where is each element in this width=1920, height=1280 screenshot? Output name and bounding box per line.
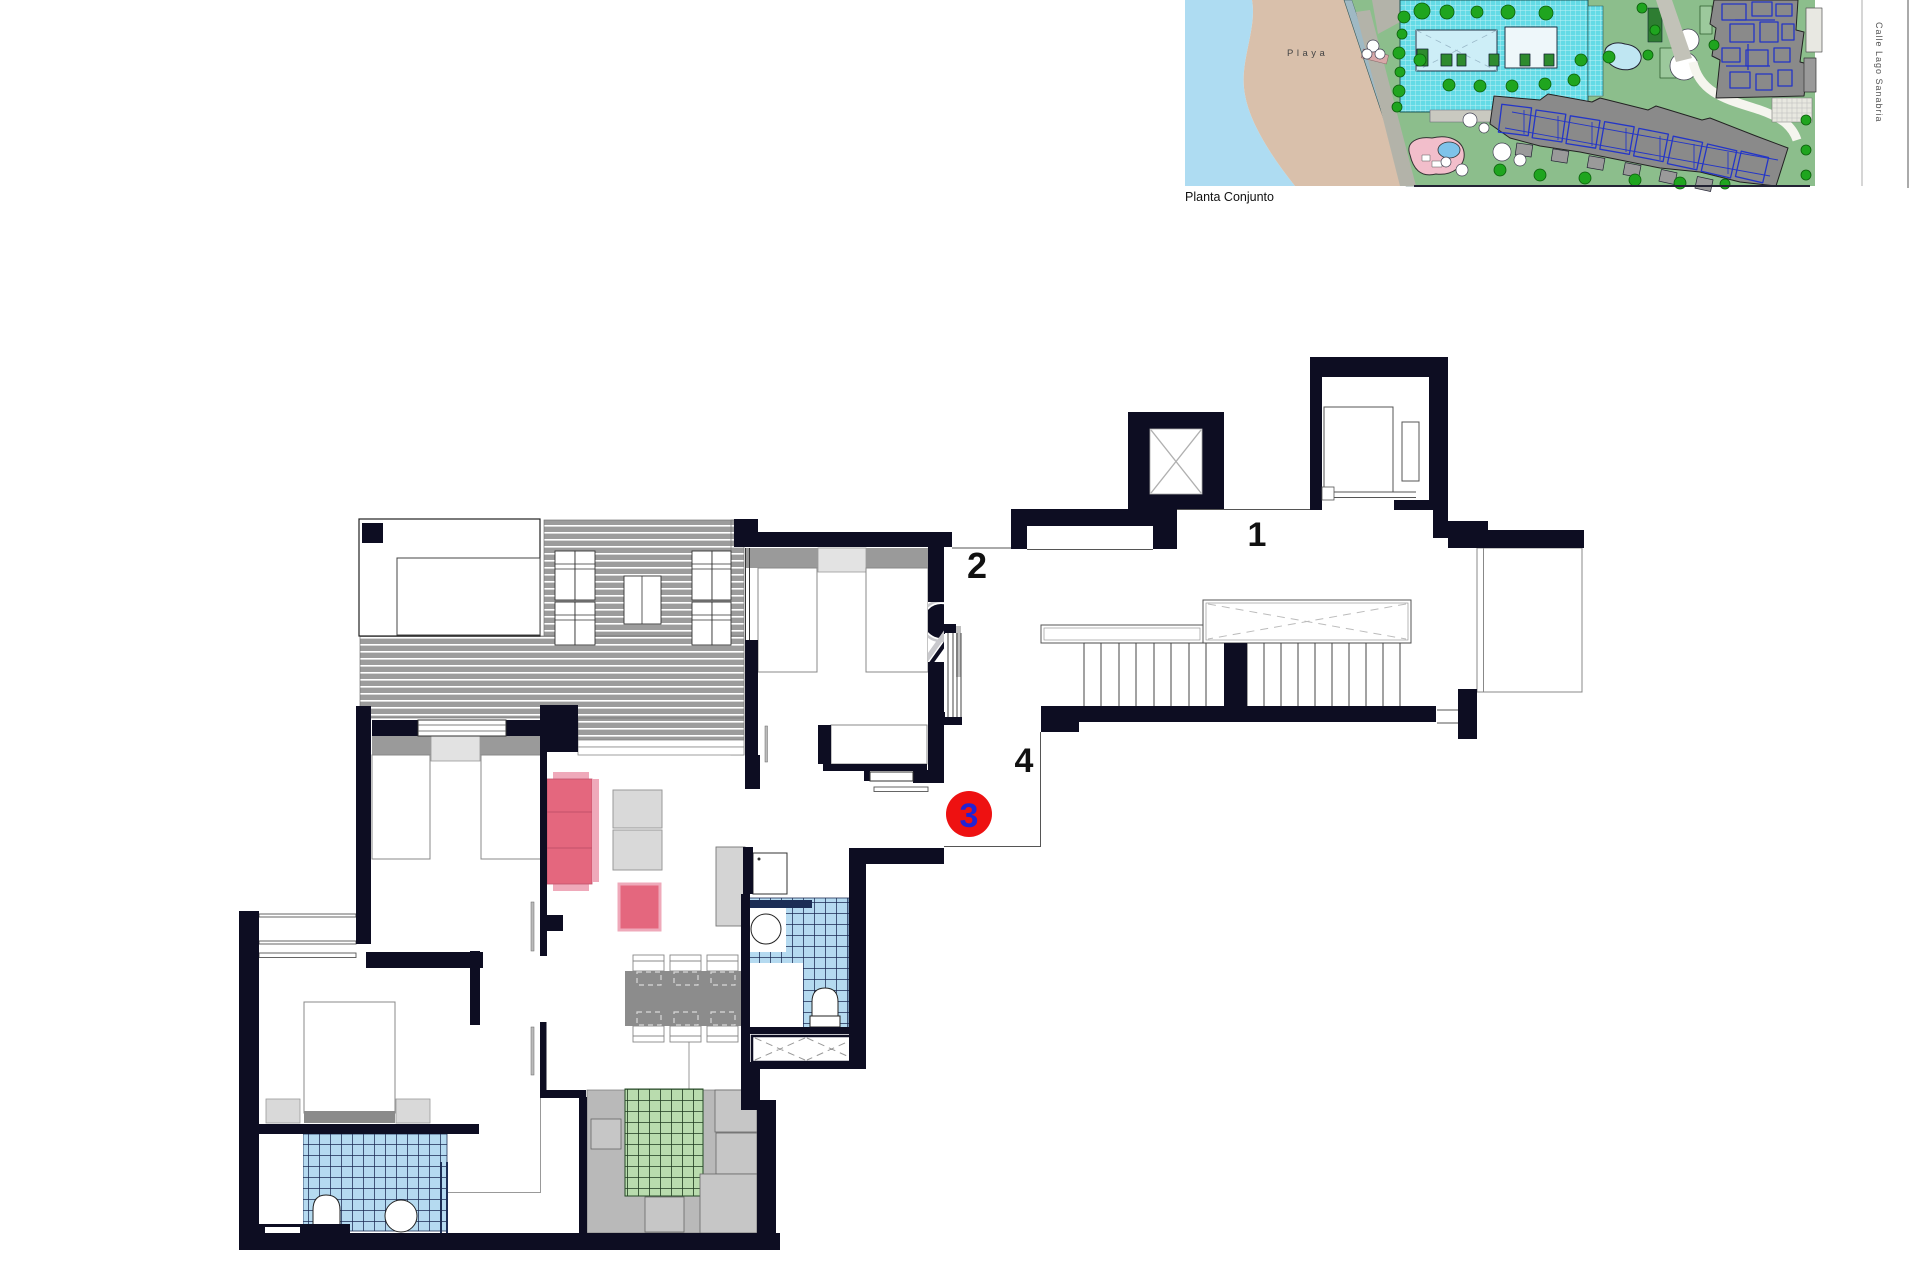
svg-text:2: 2: [967, 545, 987, 586]
svg-text:Planta Conjunto: Planta Conjunto: [1185, 190, 1274, 204]
svg-text:Calle Lago Sanabria: Calle Lago Sanabria: [1874, 22, 1884, 123]
svg-text:3: 3: [960, 797, 979, 835]
svg-text:Playa: Playa: [1287, 48, 1328, 59]
svg-text:4: 4: [1015, 742, 1034, 780]
svg-text:1: 1: [1248, 516, 1267, 554]
